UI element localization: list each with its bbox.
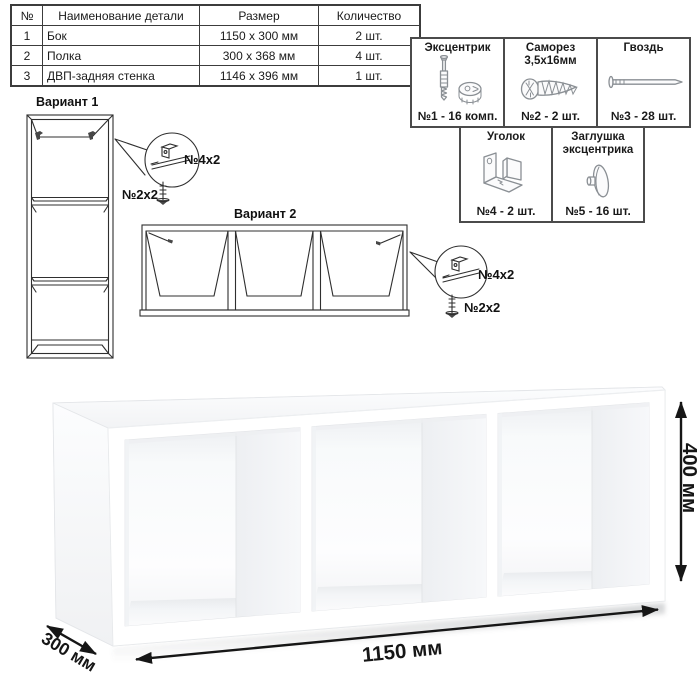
cell-size: 300 х 368 мм [200, 46, 319, 66]
variant1-bracket-label: №4х2 [184, 152, 220, 167]
variants-diagram: Вариант 1 №4х2 [0, 90, 700, 380]
cell-name: Полка [43, 46, 200, 66]
table-row: 2 Полка 300 х 368 мм 4 шт. [11, 46, 420, 66]
table-row: 1 Бок 1150 х 300 мм 2 шт. [11, 26, 420, 46]
variant2-callout: №4х2 №2х2 [410, 246, 514, 318]
variant2-screw-label: №2х2 [464, 300, 500, 315]
variant1-drawing [27, 115, 113, 358]
parts-table-header-row: № Наименование детали Размер Количество [11, 5, 420, 26]
col-header-size: Размер [200, 5, 319, 26]
cell-qty: 1 шт. [319, 66, 421, 87]
variant1-screw-label: №2х2 [122, 187, 158, 202]
cell-qty: 2 шт. [319, 26, 421, 46]
col-header-name: Наименование детали [43, 5, 200, 26]
shelf-3d-drawing: 1150 мм 400 мм 300 мм [0, 380, 700, 690]
cell-num: 3 [11, 66, 43, 87]
cell-num: 2 [11, 46, 43, 66]
width-dimension-label: 1150 мм [361, 636, 443, 667]
variant2-drawing [140, 225, 409, 316]
cell-qty: 4 шт. [319, 46, 421, 66]
cell-num: 1 [11, 26, 43, 46]
cell-size: 1150 х 300 мм [200, 26, 319, 46]
assembly-instruction-sheet: № Наименование детали Размер Количество … [0, 0, 700, 690]
variant2-bracket-label: №4х2 [478, 267, 514, 282]
col-header-qty: Количество [319, 5, 421, 26]
hardware-title: Эксцентрик [424, 42, 490, 55]
cell-name: Бок [43, 26, 200, 46]
variant2-screw-icon [446, 295, 458, 318]
hardware-title: Гвоздь [623, 42, 663, 55]
variant1-title: Вариант 1 [36, 95, 98, 109]
variant2-title: Вариант 2 [234, 207, 296, 221]
variant1-callout: №4х2 №2х2 [115, 133, 220, 205]
shelf-unit-render [53, 387, 665, 662]
table-row: 3 ДВП-задняя стенка 1146 х 396 мм 1 шт. [11, 66, 420, 87]
cell-name: ДВП-задняя стенка [43, 66, 200, 87]
hardware-title: Саморез 3,5х16мм [505, 42, 596, 68]
parts-table: № Наименование детали Размер Количество … [10, 4, 421, 87]
cell-size: 1146 х 396 мм [200, 66, 319, 87]
height-dimension-label: 400 мм [678, 443, 700, 513]
col-header-num: № [11, 5, 43, 26]
